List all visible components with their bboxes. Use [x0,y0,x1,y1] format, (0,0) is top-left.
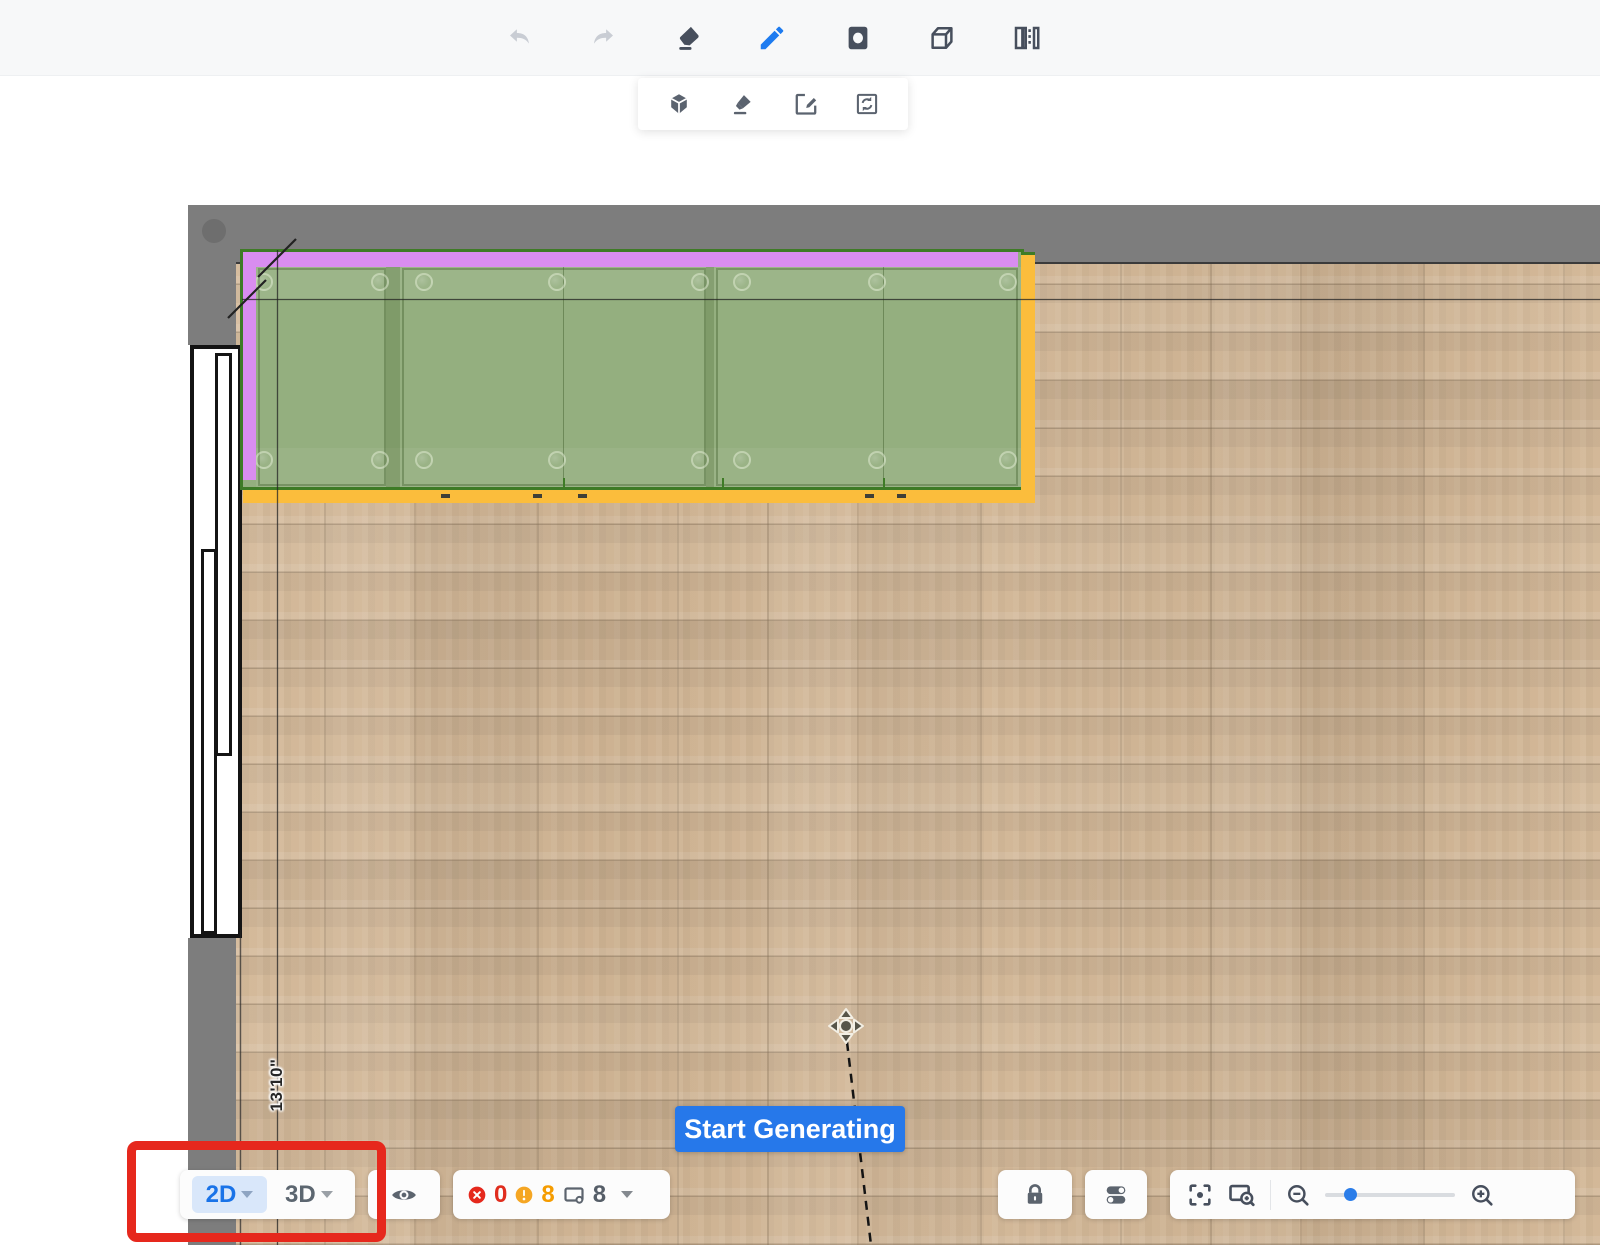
model-count-icon [562,1183,586,1207]
start-generating-button[interactable]: Start Generating [675,1106,905,1152]
door-handle-mark [578,494,587,498]
view-toggle-card: 2D 3D [180,1170,355,1219]
hinge-circle [733,273,751,291]
selection-edge-top [243,252,1018,267]
orbit-cube-button[interactable] [666,91,692,117]
hinge-circle [733,451,751,469]
zoom-out-icon[interactable] [1284,1181,1312,1209]
cabinet-interior [256,267,1021,487]
hinge-circle [868,273,886,291]
cabinet-section [716,268,1018,486]
room-shape-icon [843,23,873,53]
chevron-down-icon[interactable] [621,1191,633,1198]
error-count: 0 [494,1181,507,1209]
cabinet-section [258,268,386,486]
eye-icon[interactable] [389,1180,419,1210]
window-plan-symbol[interactable] [190,345,242,938]
warning-count: 8 [541,1181,554,1209]
cabinet-joint-tick [722,478,724,488]
chevron-down-icon [321,1191,333,1198]
dimension-label: 13'10" [267,1059,287,1112]
issues-card[interactable]: 0 8 8 [453,1170,670,1219]
redo-icon [588,23,618,53]
pencil-icon [757,23,787,53]
cabinet-joint-tick [883,478,885,488]
selection-edge-right [1021,252,1035,502]
selected-cabinet-run[interactable] [238,247,1038,505]
hinge-circle [999,451,1017,469]
eraser-icon [673,23,703,53]
cabinet-divider [386,267,400,487]
undo-icon [505,23,535,53]
model-cube-icon [927,23,957,53]
door-window-button[interactable] [1011,22,1043,54]
lock-card [998,1170,1072,1219]
move-handle[interactable] [824,1004,868,1048]
door-handle-mark [865,494,874,498]
door-handle-mark [533,494,542,498]
hinge-circle [691,451,709,469]
model-cube-button[interactable] [926,22,958,54]
model-count: 8 [593,1181,606,1209]
divider [1270,1180,1271,1210]
door-handle-mark [897,494,906,498]
warning-badge-icon [514,1185,534,1205]
hinge-circle [371,451,389,469]
zoom-region-icon[interactable] [1227,1180,1257,1210]
edit-square-button[interactable] [793,91,819,117]
edit-square-icon [793,91,819,117]
layers-toggle-card [1085,1170,1147,1219]
room-shape-button[interactable] [842,22,874,54]
toggles-icon[interactable] [1102,1181,1130,1209]
undo-button[interactable] [504,22,536,54]
hinge-circle [999,273,1017,291]
window-sash-right [215,353,232,756]
view-3d-label: 3D [285,1181,316,1209]
hinge-circle [371,273,389,291]
sync-square-button[interactable] [854,91,880,117]
visibility-card [368,1170,440,1219]
redo-button[interactable] [587,22,619,54]
error-badge-icon [467,1185,487,1205]
door-window-icon [1012,23,1042,53]
zoom-in-icon[interactable] [1468,1181,1496,1209]
hinge-circle [868,451,886,469]
cabinet-joint-tick [563,478,565,488]
hinge-circle [548,273,566,291]
view-2d-button[interactable]: 2D [192,1176,267,1213]
marker-icon [729,91,755,117]
draw-sub-toolbar [638,78,908,130]
selection-edge-bottom [243,490,1035,503]
hinge-circle [548,451,566,469]
marker-button[interactable] [729,91,755,117]
zoom-slider-handle[interactable] [1344,1188,1357,1201]
pencil-button[interactable] [756,22,788,54]
top-toolbar [0,0,1600,76]
wall-corner-marker [202,219,226,243]
sync-square-icon [854,91,880,117]
selection-edge-left [243,252,256,480]
window-sash-left [201,549,217,934]
hinge-circle [691,273,709,291]
focus-icon[interactable] [1186,1181,1214,1209]
zoom-card [1170,1170,1575,1219]
door-handle-mark [441,494,450,498]
eraser-button[interactable] [672,22,704,54]
view-2d-label: 2D [206,1181,237,1209]
zoom-slider[interactable] [1325,1188,1455,1201]
view-3d-button[interactable]: 3D [285,1181,333,1209]
hinge-circle [415,451,433,469]
orbit-cube-icon [666,91,692,117]
lock-icon[interactable] [1021,1181,1049,1209]
hinge-circle [415,273,433,291]
chevron-down-icon [241,1191,253,1198]
